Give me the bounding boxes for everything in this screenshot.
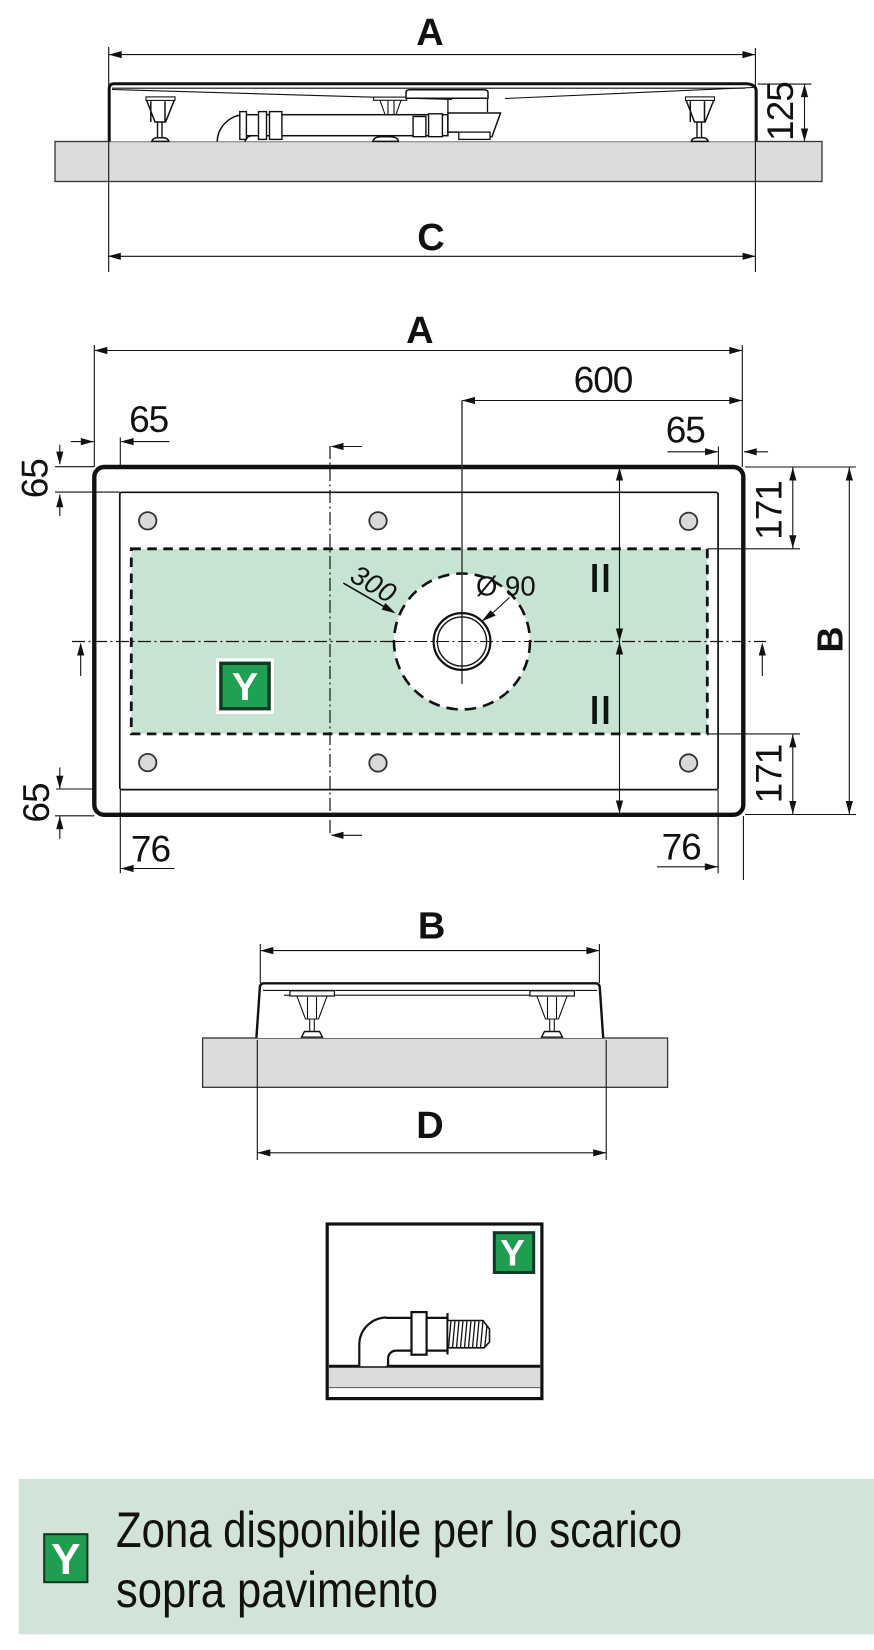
svg-text:171: 171: [749, 745, 790, 804]
svg-text:A: A: [416, 12, 443, 54]
svg-text:Y: Y: [232, 666, 258, 709]
svg-text:65: 65: [129, 399, 169, 440]
svg-text:D: D: [416, 1105, 443, 1147]
svg-text:171: 171: [749, 481, 790, 540]
svg-text:600: 600: [574, 360, 633, 401]
svg-text:Y: Y: [51, 1535, 80, 1584]
svg-text:Y: Y: [500, 1233, 525, 1274]
svg-text:65: 65: [16, 783, 57, 823]
svg-text:65: 65: [15, 459, 56, 499]
svg-text:B: B: [810, 627, 851, 653]
svg-text:76: 76: [662, 827, 701, 868]
svg-text:sopra pavimento: sopra pavimento: [116, 1562, 438, 1618]
svg-text:Zona disponibile per lo scaric: Zona disponibile per lo scarico: [116, 1502, 682, 1558]
svg-text:65: 65: [666, 410, 706, 451]
svg-text:76: 76: [131, 829, 170, 870]
svg-text:A: A: [406, 310, 433, 352]
svg-text:125: 125: [760, 82, 801, 141]
svg-text:C: C: [417, 217, 444, 259]
svg-text:B: B: [418, 906, 445, 948]
svg-text:Ø 90: Ø 90: [476, 571, 536, 602]
